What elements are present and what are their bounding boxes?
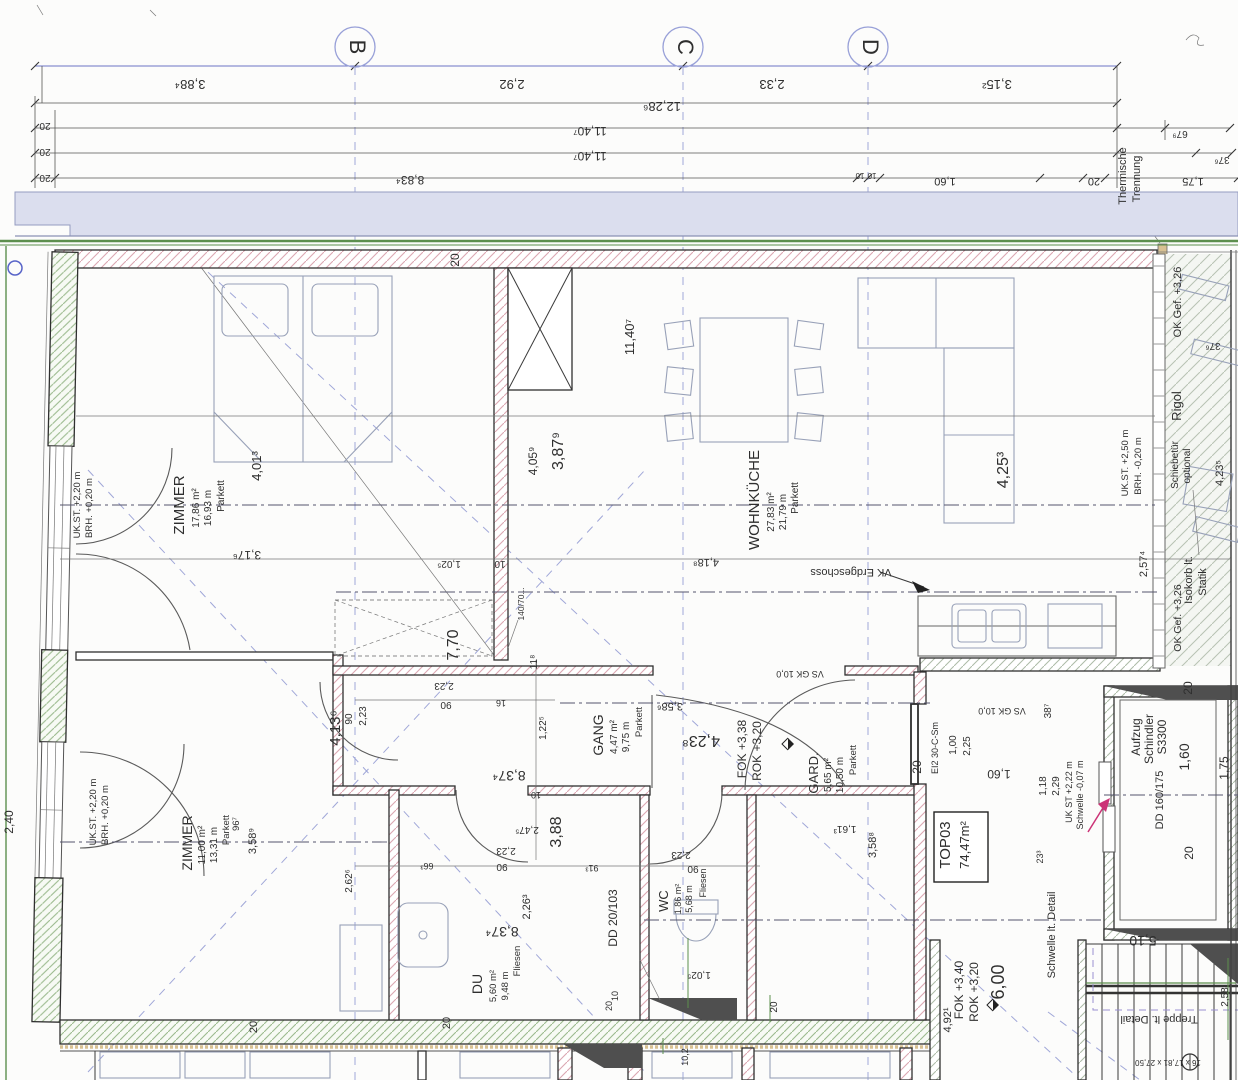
room-perimeter: 16,93 m (203, 490, 214, 526)
unit-id: TOP03 (937, 821, 954, 868)
dim: 3,58⁶ (657, 700, 683, 712)
level-note: FOK +3,40 (952, 960, 966, 1019)
window-note: UK.ST. +2,20 m (88, 779, 99, 846)
room-area: 4,47 m² (609, 719, 620, 754)
sliding-glass-wall (1153, 254, 1165, 668)
dim: 11⁸ (529, 655, 540, 670)
note-vk: VK Erdgeschoss (810, 566, 892, 578)
dim: 2,29 (1051, 776, 1062, 796)
grid-bubbles: B C D (335, 27, 888, 67)
dim: 8,83⁴ (396, 173, 425, 187)
note-vsgk: VS GK 10,0 (978, 706, 1026, 716)
dim: 1,75 (1182, 175, 1203, 187)
dim: 4,13⁶ (327, 710, 344, 745)
dim: 20 (39, 172, 51, 183)
window-note: BRH. -0,20 m (1133, 437, 1144, 495)
dim: 1,60 (1176, 743, 1192, 770)
grid-axis-c-label: C (673, 39, 698, 55)
room-floor: Fliesen (512, 946, 523, 977)
dim: 1,22⁵ (538, 716, 549, 740)
left-exterior-wall (32, 252, 78, 1022)
dim: 90 (344, 713, 355, 725)
axis-dim: 3,15² (982, 77, 1012, 92)
room-label-zimmer2: ZIMMER (179, 815, 195, 870)
dim: 2,62⁶ (344, 869, 355, 893)
dim: 6,00 (988, 964, 1008, 999)
room-label-gang: GANG (590, 714, 606, 755)
dim: 2,23 (671, 849, 691, 860)
dim: 8,37⁴ (485, 924, 518, 940)
kitchen-counter (918, 596, 1116, 656)
dim: 20 (910, 760, 924, 774)
room-floor: Parkett (216, 480, 227, 512)
lower-floor-furniture (100, 1052, 890, 1078)
vk-arrowhead (912, 581, 930, 593)
top-exterior-wall (55, 250, 1157, 268)
room-label-du: DU (469, 974, 485, 994)
note-sliding-door-1: Schiebetür (1170, 440, 1181, 488)
dim: 4,25³ (995, 451, 1012, 488)
dim: 3,58⁹ (247, 828, 259, 854)
dim: 2,23 (496, 845, 516, 856)
note-rigol: Rigol (1169, 391, 1184, 421)
room-perimeter: 13,31 m (209, 827, 220, 863)
dim: 1,02⁵ (437, 558, 461, 569)
dim: 1,18 (1038, 776, 1049, 796)
dim: 20 (441, 1017, 453, 1029)
elevator-door: DD 160/175 (1154, 771, 1166, 830)
furniture (100, 276, 1116, 1078)
dim: 38⁷ (1043, 703, 1054, 718)
washbasin (398, 903, 448, 967)
dim: 96⁷ (231, 816, 242, 831)
dim: 37⁶ (1214, 154, 1229, 165)
dim: 20 (1181, 681, 1195, 695)
dim: 4,05⁹ (526, 447, 540, 476)
dim: 1,02⁵ (687, 969, 711, 980)
grid-axis-d-label: D (858, 39, 883, 55)
door-note: UK ST +2,22 m (1064, 761, 1074, 823)
dim: 1,60 (934, 175, 955, 187)
note-thermal-1: Thermische (1117, 147, 1129, 204)
room-area: 5,65 m² (823, 757, 834, 792)
dim: 2,47⁵ (515, 824, 539, 835)
door-arc-zimmer1-b (76, 554, 190, 650)
floor-plan-page: B C D (0, 0, 1238, 1080)
room-perimeter: 21,79 m (778, 494, 789, 530)
room-label-wc: WC (656, 890, 671, 912)
bed (214, 276, 392, 462)
dining-table (664, 318, 823, 442)
note-terrace: OK Gef. +3,26 (1172, 584, 1184, 652)
dim: 10 (855, 171, 864, 180)
room-perimeter: 9,75 m (621, 722, 632, 753)
room-floor: Parkett (848, 745, 859, 775)
room-area: 5,60 m² (488, 970, 499, 1002)
room-area: 11,00 m² (197, 825, 208, 864)
level-note: ROK +3,20 (750, 721, 764, 781)
window-note: UK.ST. +2,50 m (1120, 430, 1131, 497)
dim: 2,26³ (521, 894, 533, 919)
dim: 20 (248, 1021, 260, 1033)
axis-dim: 3,88⁴ (175, 77, 206, 92)
dim: 90 (496, 861, 508, 872)
room-floor: Parkett (634, 707, 645, 737)
room-floor: Fliesen (698, 868, 708, 897)
grid-axis-b-label: B (345, 40, 370, 55)
dim: 37⁶ (1205, 340, 1220, 351)
ceiling-note: DD 20/103 (606, 889, 620, 947)
dim: 23³ (1035, 850, 1045, 863)
level-note: FOK +3,38 (735, 719, 749, 778)
dim: 4,23⁸ (682, 732, 720, 749)
note-isokorb-2: Statik (1197, 568, 1209, 596)
dim: 10 (610, 991, 620, 1001)
window-note: BRH. +0,20 m (100, 785, 111, 845)
room-perimeter: 9,48 m (500, 971, 511, 1000)
note-vsgk: VS GK 10,0 (776, 669, 824, 679)
dim: 20 (604, 1001, 614, 1011)
dim: 10 (494, 558, 506, 569)
door-spec: EI2 30-C-Sm (930, 722, 940, 774)
dim: 67⁹ (1172, 128, 1187, 139)
note-sliding-door-2: optional (1182, 448, 1193, 483)
dim: 2,23 (358, 706, 369, 726)
note-terrace: OK Gef. +3,26 (1172, 267, 1184, 338)
window-note: BRH. +0,20 m (84, 478, 95, 538)
elevator-label-2: Schindler (1142, 714, 1156, 764)
dim: 90 (687, 863, 699, 874)
dim: 20 (39, 146, 51, 157)
dim: 3,87⁹ (550, 432, 567, 470)
survey-point-marker (8, 261, 22, 275)
dim: 8,37⁴ (492, 768, 525, 784)
room-area: 27,83 m² (766, 492, 777, 532)
dim: 11,40⁷ (573, 149, 606, 163)
door-note: Schwelle -0,07 m (1075, 760, 1085, 829)
room-perimeter: 10,50 m (835, 757, 846, 793)
dim: 11,40⁷ (573, 124, 606, 138)
note-schwelle: Schwelle lt. Detail (1046, 892, 1058, 979)
dim: 3,58⁸ (867, 832, 879, 858)
room-label-gard: GARD. (806, 752, 821, 793)
dim: 2,58 (1220, 987, 1231, 1007)
note-isokorb-1: Isokorb lt. (1183, 556, 1195, 604)
dim: 91³ (585, 863, 598, 873)
level-note: ROK +3,20 (967, 962, 981, 1022)
note-treppe: Treppe lt. Detail (1120, 1013, 1197, 1025)
dim: 4,92¹ (942, 1007, 954, 1032)
stair-spec: 16 x 17,81 x 27,50 (1135, 1058, 1201, 1067)
unit-area: 74,47m² (957, 820, 972, 868)
dim: 10 (867, 171, 876, 180)
toilet-bowl (676, 914, 716, 941)
window-note: UK.ST. +2,20 m (72, 472, 83, 539)
dim: 11,40⁷ (622, 319, 637, 356)
floor-plan-drawing: B C D (0, 0, 1238, 1080)
elevator-label-3: S3300 (1155, 719, 1169, 754)
room-area: 1,86 m² (673, 884, 683, 915)
room-label-zimmer1: ZIMMER (171, 475, 188, 534)
room-floor: Parkett (790, 482, 801, 514)
exterior-walls (32, 250, 1157, 1051)
upper-slab-band (15, 192, 1238, 236)
axis-dim: 2,92 (499, 77, 524, 92)
note-thermal-2: Trennung (1131, 156, 1143, 203)
sofa (858, 278, 1014, 523)
dim: 20 (769, 1001, 780, 1013)
dim: 4,18⁸ (693, 556, 719, 568)
dim: 20 (1088, 175, 1100, 187)
dim: 1,61³ (833, 823, 856, 834)
room-label-wohnkueche: WOHNKÜCHE (745, 450, 763, 550)
dim: 1,60 (987, 767, 1011, 781)
dim: 5,10 (1129, 933, 1156, 949)
dim: 10,2 (680, 1048, 690, 1066)
dim: 2,23 (434, 680, 454, 691)
dim: 4,23⁵ (1214, 460, 1226, 486)
dim: 7,70 (445, 629, 462, 660)
dim: 20 (1182, 846, 1196, 860)
dim: 10 (531, 790, 541, 800)
dim: 3,88 (548, 816, 565, 847)
room-perimeter: 5,68 m (684, 885, 694, 913)
room-area: 17,86 m² (191, 488, 202, 528)
dim: 20 (39, 120, 51, 131)
dim: 2,25 (962, 736, 973, 756)
dim: 2,40 (2, 810, 16, 834)
dim-total: 12,28⁶ (643, 99, 681, 114)
dim: 20 (448, 253, 462, 267)
dim: 1,75 (1217, 756, 1231, 780)
axis-dim: 2,33 (759, 77, 784, 92)
dim: 66³ (420, 861, 433, 871)
dim: 16 (496, 698, 506, 708)
dim: 4,01³ (249, 451, 264, 481)
elevator-label-1: Aufzug (1129, 718, 1143, 755)
dim: 90 (440, 699, 452, 710)
dim: 2,57⁴ (1138, 551, 1150, 577)
dim: 1,00 (948, 735, 959, 755)
dim: 3,17⁶ (233, 548, 261, 562)
note-duct: 140/70... (516, 587, 526, 620)
bottom-exterior-wall (60, 1020, 938, 1044)
